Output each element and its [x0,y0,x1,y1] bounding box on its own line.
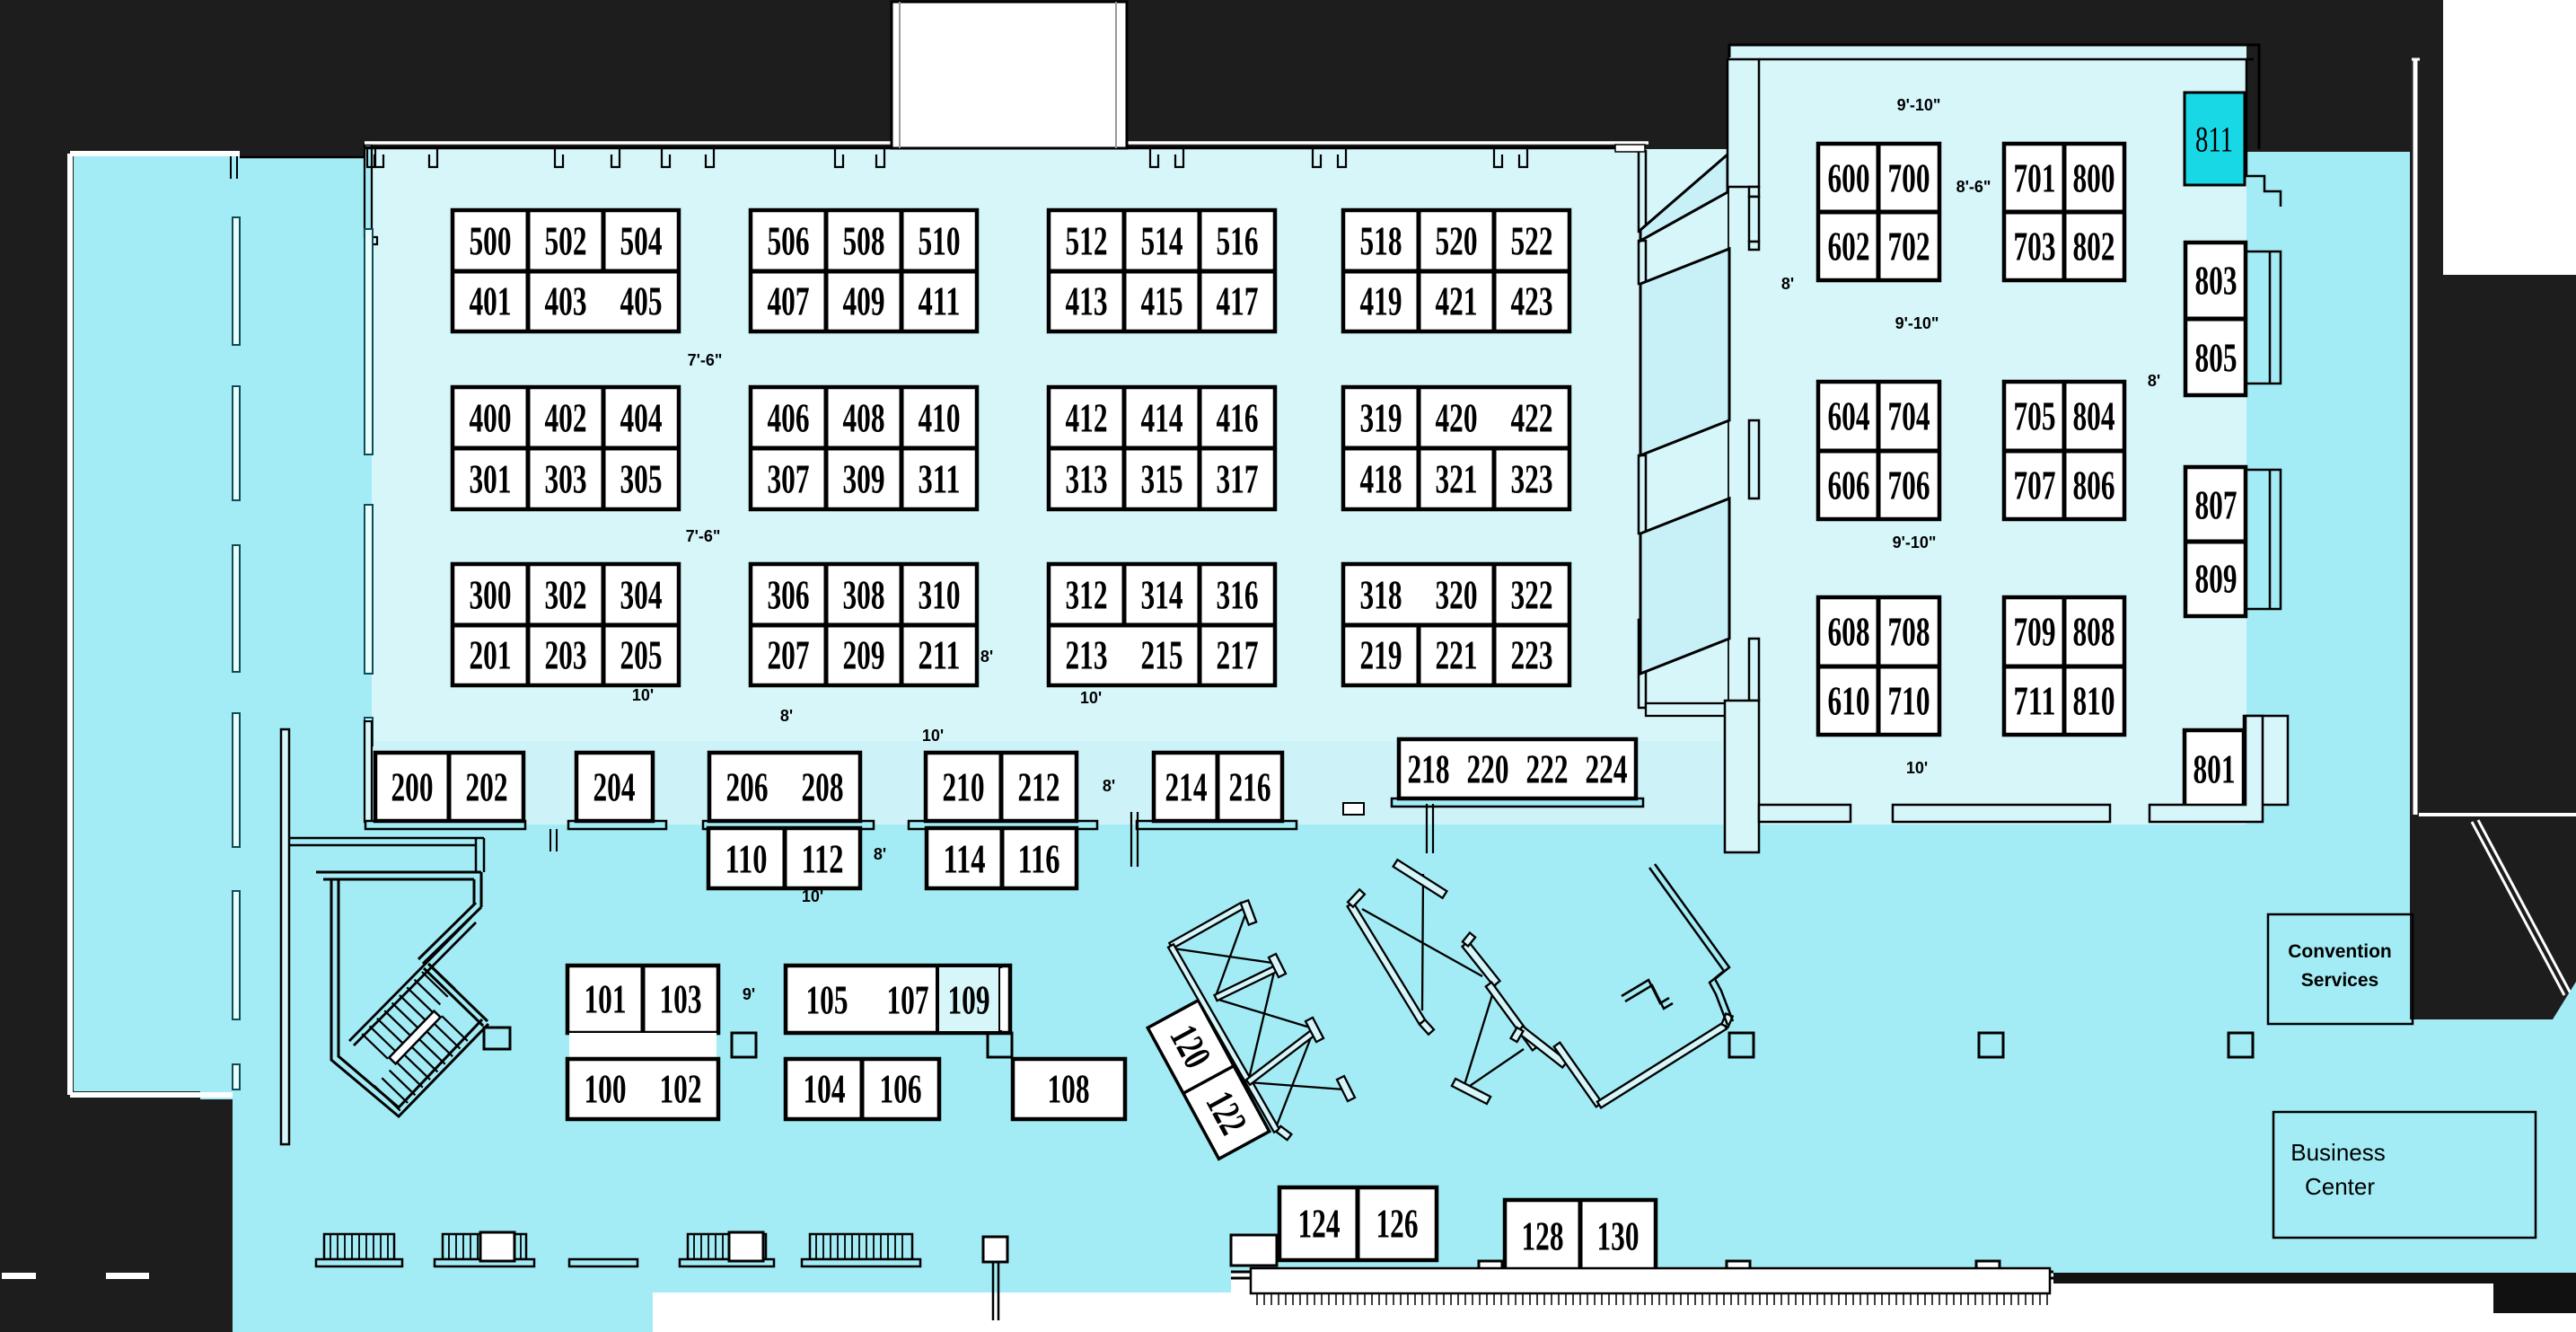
svg-text:801: 801 [2194,746,2236,792]
svg-text:319: 319 [1360,395,1402,441]
svg-text:311: 311 [919,456,961,502]
svg-text:602: 602 [1828,224,1870,269]
svg-text:114: 114 [944,836,986,882]
svg-text:9': 9' [743,985,755,1003]
svg-text:600: 600 [1828,155,1870,201]
svg-text:412: 412 [1066,395,1108,441]
svg-text:522: 522 [1511,218,1553,264]
svg-text:8': 8' [1781,275,1794,293]
svg-text:301: 301 [470,456,512,502]
svg-text:126: 126 [1376,1201,1419,1247]
svg-text:124: 124 [1298,1201,1341,1247]
svg-text:404: 404 [620,395,663,441]
svg-text:314: 314 [1141,572,1183,618]
svg-text:8': 8' [780,707,793,725]
svg-text:Services: Services [2301,970,2378,991]
svg-text:128: 128 [1522,1213,1564,1259]
svg-text:316: 316 [1217,572,1259,618]
svg-text:223: 223 [1511,632,1553,678]
svg-text:104: 104 [804,1066,846,1112]
svg-text:101: 101 [585,976,627,1022]
svg-text:112: 112 [802,836,844,882]
svg-text:312: 312 [1066,572,1108,618]
svg-text:416: 416 [1217,395,1259,441]
svg-text:518: 518 [1360,218,1402,264]
svg-text:407: 407 [768,278,810,324]
svg-text:202: 202 [466,764,508,810]
svg-text:708: 708 [1888,609,1930,655]
svg-text:707: 707 [2014,463,2056,508]
svg-text:704: 704 [1888,393,1930,439]
svg-text:409: 409 [843,278,885,324]
svg-text:308: 308 [843,572,885,618]
svg-text:423: 423 [1511,278,1553,324]
svg-text:700: 700 [1888,155,1930,201]
svg-text:701: 701 [2014,155,2056,201]
svg-text:415: 415 [1141,278,1183,324]
svg-text:512: 512 [1066,218,1108,264]
svg-text:805: 805 [2195,335,2238,381]
svg-text:Convention: Convention [2288,941,2392,962]
svg-text:705: 705 [2014,393,2056,439]
svg-text:806: 806 [2073,463,2115,508]
svg-text:606: 606 [1828,463,1870,508]
svg-text:807: 807 [2195,482,2238,528]
svg-text:305: 305 [620,456,663,502]
svg-text:510: 510 [919,218,961,264]
svg-text:302: 302 [545,572,587,618]
svg-text:219: 219 [1360,632,1402,678]
svg-text:110: 110 [725,836,768,882]
svg-text:210: 210 [943,764,985,810]
svg-text:402: 402 [545,395,587,441]
svg-text:500: 500 [470,218,512,264]
svg-text:323: 323 [1511,456,1553,502]
svg-text:809: 809 [2195,556,2238,602]
svg-text:802: 802 [2073,224,2115,269]
svg-text:106: 106 [880,1066,922,1112]
svg-text:810: 810 [2073,678,2115,724]
svg-text:200: 200 [391,764,434,810]
svg-text:100: 100 [585,1066,627,1112]
svg-text:506: 506 [768,218,810,264]
svg-text:9'-10": 9'-10" [1895,314,1939,332]
svg-text:702: 702 [1888,224,1930,269]
svg-text:105: 105 [806,977,848,1023]
svg-text:307: 307 [768,456,810,502]
svg-text:216: 216 [1229,764,1271,810]
svg-text:419: 419 [1360,278,1402,324]
svg-text:201: 201 [470,632,512,678]
svg-text:9'-10": 9'-10" [1893,534,1937,551]
svg-text:215: 215 [1141,632,1183,678]
svg-text:408: 408 [843,395,885,441]
svg-text:209: 209 [843,632,885,678]
svg-text:320: 320 [1436,572,1478,618]
svg-text:417: 417 [1217,278,1259,324]
svg-text:208: 208 [802,764,844,810]
svg-text:803: 803 [2195,258,2238,304]
svg-text:304: 304 [620,572,663,618]
svg-text:711: 711 [2014,678,2056,724]
svg-text:203: 203 [545,632,587,678]
svg-text:7'-6": 7'-6" [688,351,723,369]
svg-text:8': 8' [874,845,886,863]
svg-text:710: 710 [1888,678,1930,724]
svg-text:130: 130 [1597,1213,1640,1259]
svg-text:608: 608 [1828,609,1870,655]
svg-text:401: 401 [470,278,512,324]
svg-text:811: 811 [2195,119,2233,160]
svg-text:800: 800 [2073,155,2115,201]
svg-text:321: 321 [1436,456,1478,502]
svg-text:420: 420 [1436,395,1478,441]
svg-text:218: 218 [1408,746,1450,792]
svg-text:317: 317 [1217,456,1259,502]
svg-text:206: 206 [726,764,769,810]
svg-text:103: 103 [660,976,702,1022]
svg-text:309: 309 [843,456,885,502]
svg-text:224: 224 [1586,746,1628,792]
svg-text:306: 306 [768,572,810,618]
svg-text:212: 212 [1018,764,1060,810]
svg-text:418: 418 [1360,456,1402,502]
svg-text:205: 205 [620,632,663,678]
svg-text:414: 414 [1141,395,1183,441]
svg-text:10': 10' [632,686,654,704]
svg-text:514: 514 [1141,218,1183,264]
svg-text:116: 116 [1018,836,1060,882]
svg-text:706: 706 [1888,463,1930,508]
svg-text:406: 406 [768,395,810,441]
svg-text:7'-6": 7'-6" [686,527,721,545]
svg-text:610: 610 [1828,678,1870,724]
svg-text:405: 405 [620,278,663,324]
svg-text:109: 109 [948,977,990,1023]
svg-text:516: 516 [1217,218,1259,264]
svg-text:322: 322 [1511,572,1553,618]
svg-text:403: 403 [545,278,587,324]
svg-text:410: 410 [919,395,961,441]
svg-text:703: 703 [2014,224,2056,269]
svg-text:10': 10' [922,727,944,745]
svg-text:207: 207 [768,632,810,678]
svg-text:808: 808 [2073,609,2115,655]
svg-text:8'-6": 8'-6" [1956,178,1991,196]
svg-text:413: 413 [1066,278,1108,324]
svg-text:214: 214 [1165,764,1208,810]
svg-text:Center: Center [2305,1173,2375,1200]
svg-text:400: 400 [470,395,512,441]
svg-text:709: 709 [2014,609,2056,655]
svg-text:217: 217 [1217,632,1259,678]
svg-text:107: 107 [887,977,929,1023]
svg-text:211: 211 [919,632,961,678]
svg-text:508: 508 [843,218,885,264]
svg-text:220: 220 [1467,746,1509,792]
svg-text:108: 108 [1048,1066,1090,1112]
svg-text:421: 421 [1436,278,1478,324]
svg-text:604: 604 [1828,393,1870,439]
svg-text:804: 804 [2073,393,2115,439]
svg-text:10': 10' [1906,759,1928,777]
svg-text:Business: Business [2290,1139,2386,1166]
svg-text:310: 310 [919,572,961,618]
svg-text:221: 221 [1436,632,1478,678]
svg-text:213: 213 [1066,632,1108,678]
svg-text:10': 10' [1080,689,1102,707]
svg-text:222: 222 [1526,746,1569,792]
svg-text:8': 8' [980,648,993,666]
svg-text:9'-10": 9'-10" [1897,96,1941,114]
svg-text:303: 303 [545,456,587,502]
svg-text:411: 411 [919,278,961,324]
svg-text:102: 102 [660,1066,702,1112]
svg-text:300: 300 [470,572,512,618]
svg-text:8': 8' [2148,372,2160,390]
svg-text:502: 502 [545,218,587,264]
svg-text:318: 318 [1360,572,1402,618]
svg-text:313: 313 [1066,456,1108,502]
svg-text:520: 520 [1436,218,1478,264]
svg-text:422: 422 [1511,395,1553,441]
svg-text:504: 504 [620,218,663,264]
svg-text:8': 8' [1103,777,1115,795]
svg-text:315: 315 [1141,456,1183,502]
svg-text:204: 204 [593,764,636,810]
